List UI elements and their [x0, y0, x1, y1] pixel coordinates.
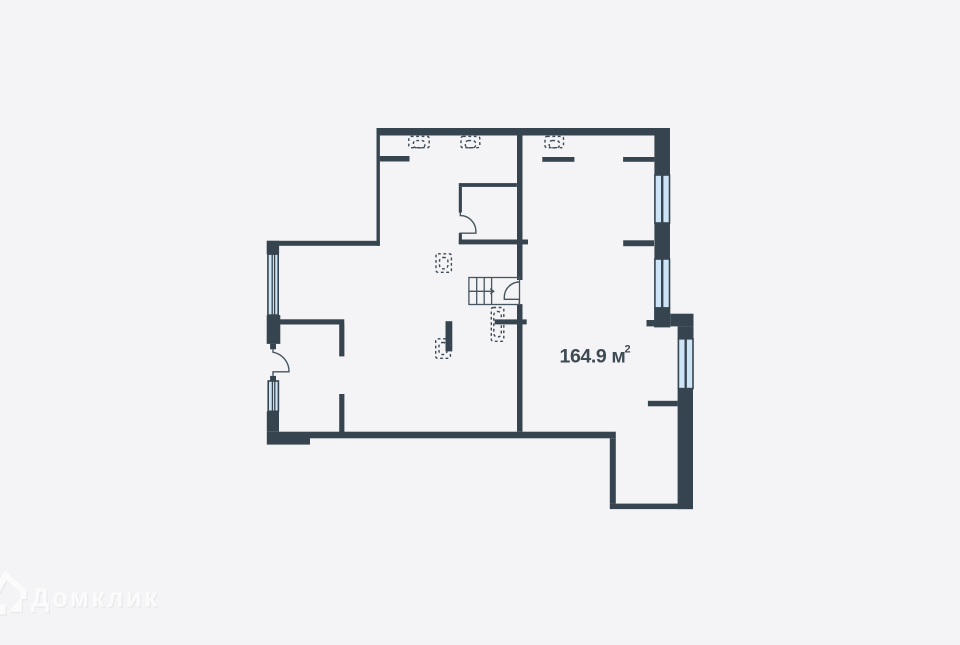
- svg-text:Домклик: Домклик: [31, 585, 160, 613]
- svg-text:164.9 м: 164.9 м: [560, 345, 626, 367]
- svg-text:2: 2: [625, 344, 631, 356]
